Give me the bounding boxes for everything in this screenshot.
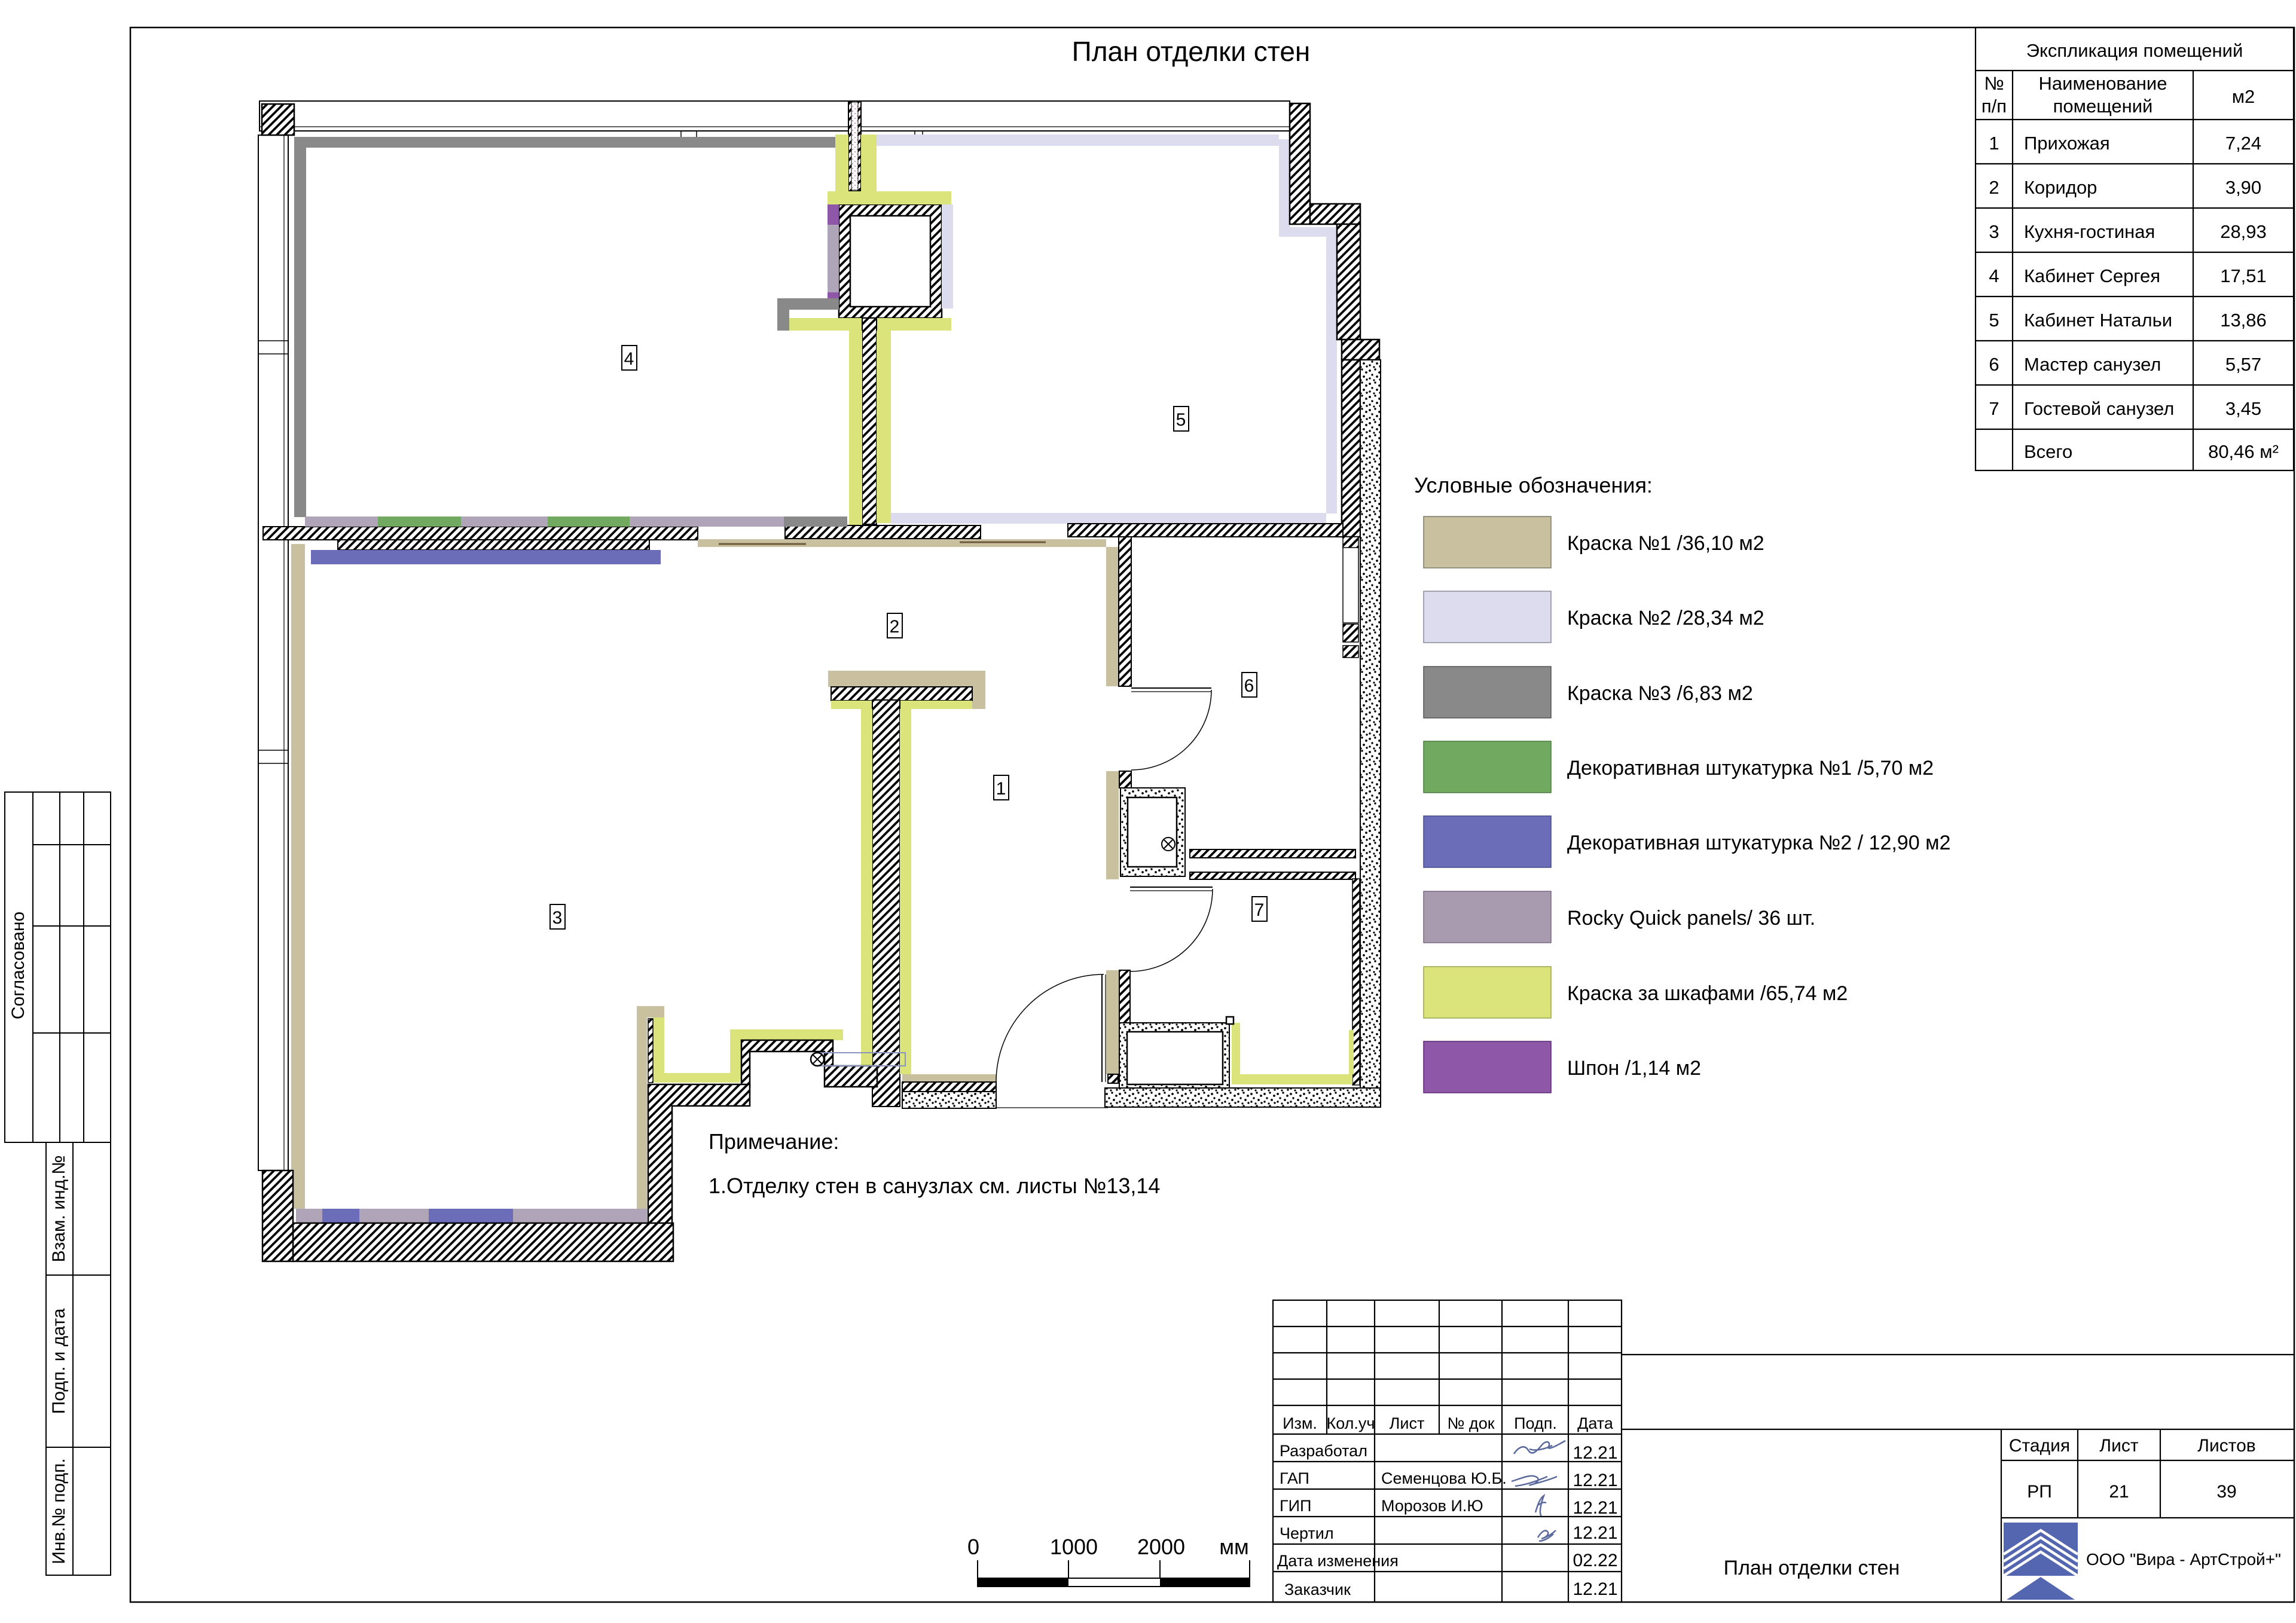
svg-text:02.22: 02.22 (1573, 1551, 1617, 1570)
svg-text:12.21: 12.21 (1573, 1443, 1617, 1463)
svg-text:2: 2 (890, 617, 900, 637)
svg-text:Кол.уч: Кол.уч (1327, 1414, 1375, 1432)
svg-text:Изм.: Изм. (1283, 1414, 1317, 1432)
svg-text:ГАП: ГАП (1280, 1469, 1309, 1487)
svg-text:Коридор: Коридор (2024, 177, 2097, 198)
svg-text:Семенцова Ю.Б.: Семенцова Ю.Б. (1381, 1469, 1507, 1487)
svg-text:Чертил: Чертил (1280, 1524, 1334, 1542)
svg-text:12.21: 12.21 (1573, 1523, 1617, 1543)
svg-text:План отделки стен: План отделки стен (1072, 36, 1311, 67)
svg-text:Кухня-гостиная: Кухня-гостиная (2024, 221, 2155, 242)
svg-text:4: 4 (1989, 265, 1999, 286)
svg-text:Условные обозначения:: Условные обозначения: (1414, 473, 1653, 497)
svg-text:Экспликация помещений: Экспликация помещений (2026, 40, 2243, 61)
svg-text:3,90: 3,90 (2225, 177, 2261, 198)
svg-text:1000: 1000 (1050, 1535, 1098, 1559)
svg-text:21: 21 (2109, 1482, 2129, 1502)
svg-text:5: 5 (1176, 410, 1186, 430)
svg-text:№ док: № док (1447, 1414, 1494, 1432)
svg-text:Шпон /1,14 м2: Шпон /1,14 м2 (1567, 1057, 1701, 1080)
svg-text:Лист: Лист (1390, 1414, 1425, 1432)
svg-text:Инв.№ подп.: Инв.№ подп. (49, 1458, 69, 1564)
svg-text:17,51: 17,51 (2220, 265, 2267, 286)
svg-text:12.21: 12.21 (1573, 1498, 1617, 1518)
svg-text:6: 6 (1244, 676, 1254, 696)
svg-text:28,93: 28,93 (2220, 221, 2267, 242)
svg-text:Краска за шкафами /65,74 м2: Краска за шкафами /65,74 м2 (1567, 982, 1848, 1005)
svg-text:7: 7 (1254, 900, 1265, 920)
svg-text:6: 6 (1989, 354, 1999, 375)
svg-text:4: 4 (624, 349, 634, 369)
svg-text:№: № (1984, 73, 2004, 94)
svg-text:Дата изменения: Дата изменения (1277, 1552, 1399, 1570)
svg-text:39: 39 (2216, 1482, 2236, 1502)
svg-text:Краска №2 /28,34 м2: Краска №2 /28,34 м2 (1567, 607, 1764, 629)
svg-text:м2: м2 (2232, 86, 2255, 107)
svg-text:Кабинет Натальи: Кабинет Натальи (2024, 310, 2172, 331)
svg-text:5: 5 (1989, 310, 1999, 331)
svg-text:Разработал: Разработал (1280, 1442, 1367, 1460)
svg-text:Стадия: Стадия (2009, 1436, 2070, 1456)
svg-text:Прихожая: Прихожая (2024, 133, 2110, 154)
svg-text:1: 1 (996, 779, 1006, 799)
svg-text:Лист: Лист (2099, 1436, 2138, 1456)
svg-text:ООО "Вира - АртСтрой+": ООО "Вира - АртСтрой+" (2086, 1550, 2281, 1569)
svg-text:помещений: помещений (2053, 96, 2153, 117)
svg-text:2: 2 (1989, 177, 1999, 198)
svg-text:7,24: 7,24 (2225, 133, 2261, 154)
svg-text:Всего: Всего (2024, 441, 2072, 462)
svg-text:3: 3 (552, 908, 563, 928)
svg-text:0: 0 (967, 1535, 979, 1559)
svg-text:12.21: 12.21 (1573, 1579, 1617, 1599)
svg-text:Морозов И.Ю: Морозов И.Ю (1381, 1497, 1483, 1515)
svg-text:Подп.: Подп. (1514, 1414, 1557, 1432)
svg-text:5,57: 5,57 (2225, 354, 2261, 375)
svg-text:Мастер санузел: Мастер санузел (2024, 354, 2161, 375)
svg-text:Краска №1 /36,10 м2: Краска №1 /36,10 м2 (1567, 532, 1764, 555)
svg-text:Примечание:: Примечание: (709, 1129, 839, 1154)
svg-text:3,45: 3,45 (2225, 398, 2261, 419)
svg-text:13,86: 13,86 (2220, 310, 2267, 331)
svg-text:Краска №3 /6,83 м2: Краска №3 /6,83 м2 (1567, 682, 1753, 705)
svg-text:Декоративная штукатурка №2 / 1: Декоративная штукатурка №2 / 12,90 м2 (1567, 832, 1950, 854)
svg-text:1: 1 (1989, 133, 1999, 154)
svg-text:Согласовано: Согласовано (8, 912, 28, 1019)
svg-text:7: 7 (1989, 398, 1999, 419)
svg-text:1.Отделку стен в санузлах см.: 1.Отделку стен в санузлах см. листы №13,… (709, 1173, 1160, 1198)
svg-text:Гостевой санузел: Гостевой санузел (2024, 398, 2174, 419)
svg-text:ГИП: ГИП (1280, 1497, 1311, 1515)
svg-text:Декоративная штукатурка №1 /5,: Декоративная штукатурка №1 /5,70 м2 (1567, 757, 1934, 780)
svg-text:Листов: Листов (2197, 1436, 2255, 1456)
svg-text:План отделки стен: План отделки стен (1724, 1557, 1900, 1579)
svg-text:Rocky Quick panels/ 36 шт.: Rocky Quick panels/ 36 шт. (1567, 907, 1815, 930)
svg-text:80,46 м²: 80,46 м² (2208, 441, 2279, 462)
svg-text:Наименование: Наименование (2039, 73, 2167, 94)
svg-text:2000: 2000 (1137, 1535, 1185, 1559)
svg-text:п/п: п/п (1981, 96, 2007, 117)
svg-text:Дата: Дата (1577, 1414, 1614, 1432)
svg-text:Заказчик: Заказчик (1284, 1581, 1351, 1598)
svg-text:Подп. и дата: Подп. и дата (49, 1308, 69, 1414)
svg-text:мм: мм (1219, 1535, 1249, 1559)
svg-text:12.21: 12.21 (1573, 1471, 1617, 1490)
svg-text:3: 3 (1989, 221, 1999, 242)
svg-text:Взам. инд.№: Взам. инд.№ (49, 1155, 69, 1262)
svg-text:РП: РП (2027, 1482, 2052, 1502)
svg-text:Кабинет Сергея: Кабинет Сергея (2024, 265, 2160, 286)
